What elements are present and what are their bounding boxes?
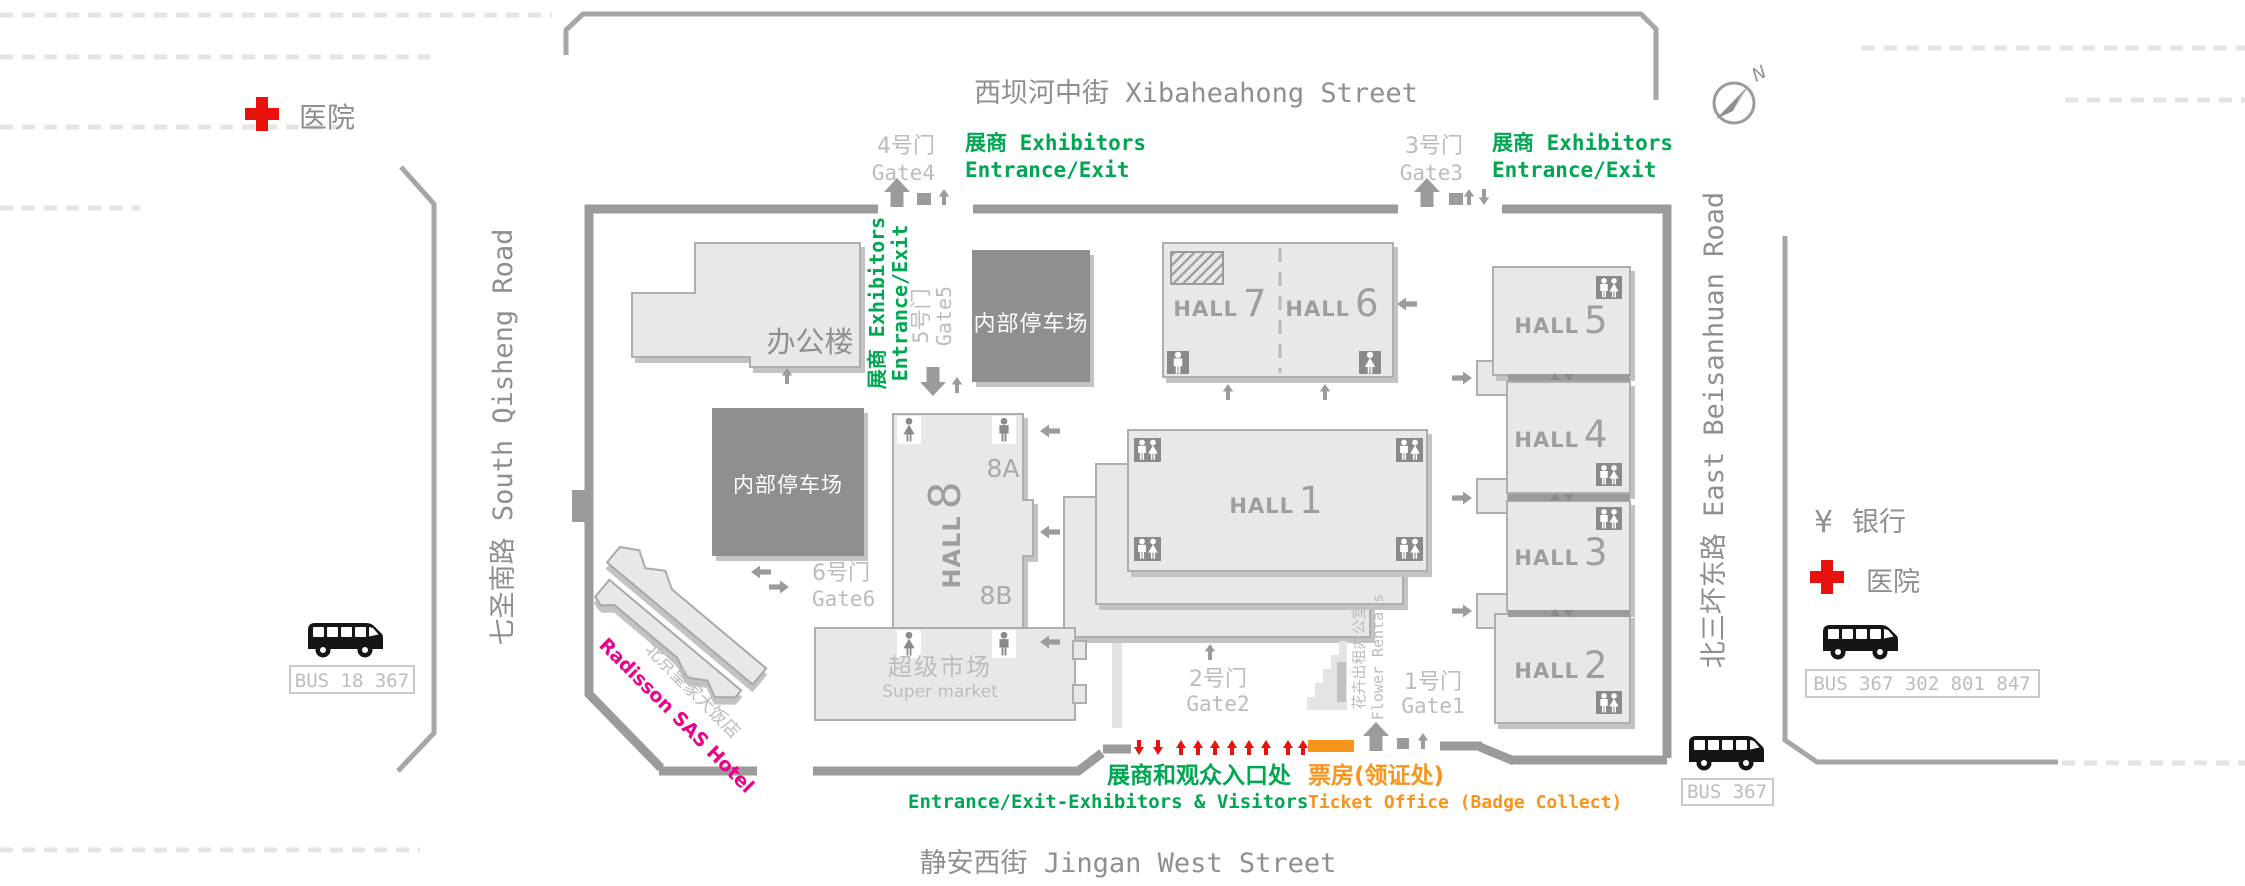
bus-stop-west-label: BUS 18 367 (295, 670, 409, 692)
street-east-label: 北三坏东路 East Beisanhuan Road (1699, 192, 1730, 668)
wc-woman-icon (1359, 351, 1381, 374)
gate6-arrow-left (751, 566, 771, 579)
gate1-cn-label: 1号门 (1404, 670, 1462, 695)
supermarket-cn-label: 超级市场 (888, 653, 992, 681)
wc-pair-icon (1596, 463, 1622, 486)
connector-tab-4-3 (1477, 479, 1508, 513)
map-svg: 西坝河中街 Xibaheahong Street 静安西街 Jingan Wes… (0, 0, 2245, 886)
hall7-hatched-area (1171, 252, 1223, 284)
hospital-cross-icon (1810, 560, 1844, 594)
gate5-cn-label: 5号门 (909, 288, 933, 343)
wc-pair-icon (1396, 438, 1423, 462)
bus-icon (308, 623, 383, 658)
hall8b-label: 8B (979, 581, 1012, 610)
gate3-en-label: Gate3 (1400, 161, 1463, 185)
gate5-exhibitors-line1: 展商 Exhibitors (865, 217, 889, 389)
gate5-arrow (920, 367, 946, 396)
wc-man-icon (1167, 351, 1189, 374)
main-entrance-cn-label: 展商和观众入口处 (1107, 762, 1291, 789)
ticket-office-en-label: Ticket Office (Badge Collect) (1308, 792, 1622, 813)
ticket-office-marker (1308, 740, 1354, 752)
flower-en-label: Flower Rentals (1369, 594, 1387, 720)
gate6-arrow-right (769, 581, 789, 594)
bank-label: 银行 (1852, 507, 1906, 538)
bank-symbol: ¥ (1814, 505, 1833, 540)
exhibition-center-map: 西坝河中街 Xibaheahong Street 静安西街 Jingan Wes… (0, 0, 2245, 886)
wc-pair-icon (1396, 537, 1423, 561)
wc-pair-icon (1134, 438, 1161, 462)
ticket-office-cn-label: 票房(领证处) (1308, 762, 1444, 789)
main-entrance-arrows (1134, 740, 1308, 755)
gate4-en-label: Gate4 (872, 161, 935, 185)
parking-west-label: 内部停车场 (733, 473, 843, 497)
gate4-cn-label: 4号门 (877, 134, 935, 159)
gate2-en-label: Gate2 (1186, 692, 1249, 716)
gate6-cn-label: 6号门 (812, 561, 870, 586)
street-north-label: 西坝河中街 Xibaheahong Street (974, 78, 1418, 109)
bus-stop-south-label: BUS 367 (1687, 781, 1767, 803)
bus-icon (1689, 736, 1764, 771)
hospital-east-label: 医院 (1866, 567, 1920, 598)
gate5-en-label: Gate5 (932, 286, 956, 346)
gate4-exhibitors-line2: Entrance/Exit (965, 158, 1129, 182)
flower-rentals-building (1307, 633, 1347, 710)
wc-pair-icon (1134, 537, 1161, 561)
gate1-arrow (1363, 722, 1389, 751)
gate3-exhibitors-line1: 展商 Exhibitors (1492, 131, 1673, 155)
compass-icon (1714, 83, 1754, 123)
wc-man-icon (992, 416, 1016, 444)
compass-north-label: N (1748, 62, 1770, 87)
hall8a-label: 8A (986, 454, 1019, 483)
wc-pair-icon (1596, 276, 1622, 299)
gate6-en-label: Gate6 (812, 587, 875, 611)
flower-cn-label: 花卉出租办公室 (1350, 604, 1368, 709)
bus-icon (1823, 625, 1898, 660)
parking-north-label: 内部停车场 (973, 312, 1088, 337)
office-label: 办公楼 (766, 325, 853, 359)
wc-man-icon (992, 630, 1016, 658)
gate1-en-label: Gate1 (1401, 694, 1464, 718)
bus-stop-east-label: BUS 367 302 801 847 (1813, 673, 2030, 695)
street-west-label: 七圣南路 South Qisheng Road (488, 229, 519, 646)
wc-woman-icon (897, 416, 921, 444)
gate3-exhibitors-line2: Entrance/Exit (1492, 158, 1656, 182)
main-entrance-en-label: Entrance/Exit-Exhibitors & Visitors (908, 791, 1308, 813)
gate3-cn-label: 3号门 (1405, 134, 1463, 159)
street-south-label: 静安西街 Jingan West Street (920, 848, 1337, 879)
gate2-cn-label: 2号门 (1189, 667, 1247, 692)
supermarket-en-label: Super market (882, 682, 998, 702)
wc-pair-icon (1596, 691, 1622, 714)
hospital-west-label: 医院 (299, 101, 355, 134)
wc-pair-icon (1596, 507, 1622, 530)
gate5-exhibitors-line2: Entrance/Exit (888, 225, 912, 382)
gate4-exhibitors-line1: 展商 Exhibitors (965, 131, 1146, 155)
